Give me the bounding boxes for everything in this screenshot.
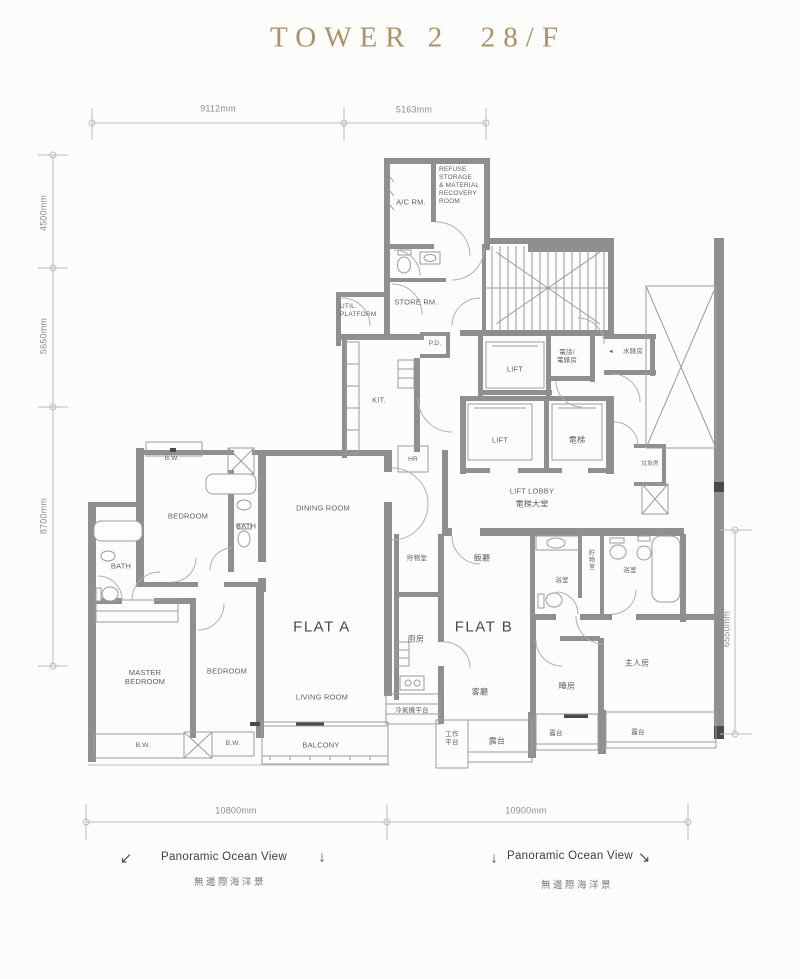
room-label-master-bedroom-a: MASTER BEDROOM <box>125 668 165 686</box>
dim-right-1: 6550mm <box>723 611 732 647</box>
room-label-bw-top: B.W. <box>165 455 180 463</box>
room-label-bedroom-a1: BEDROOM <box>168 512 208 521</box>
flat-a-name: FLAT A <box>293 623 351 632</box>
ocean-view-arrow-southwest-icon: ↙ <box>120 849 133 867</box>
ocean-view-arrow-southeast-icon: ↘ <box>638 848 651 866</box>
room-label-bw-bottom-left: B.W. <box>136 742 151 750</box>
page-title: TOWER 2 28/F <box>270 22 566 55</box>
room-label-bath-b1: 浴室 <box>555 577 568 585</box>
ocean-view-label-cn-left: 無邊際海洋景 <box>194 874 266 888</box>
room-label-utility-platform-b: 工作 平台 <box>445 731 458 747</box>
room-label-ac-room: A/C RM. <box>396 198 426 207</box>
flat-b-name: FLAT B <box>455 623 513 632</box>
room-label-dining-a: DINING ROOM <box>296 504 350 513</box>
room-label-kitchen-b: 廚房 <box>408 635 424 644</box>
dim-left-2: 5650mm <box>40 318 49 354</box>
ocean-view-arrow-down-right-icon: ↓ <box>490 850 498 867</box>
dim-bottom-1: 10800mm <box>215 807 256 816</box>
room-label-balcony-a: BALCONY <box>302 741 339 750</box>
floorplan-linework <box>0 0 800 979</box>
dim-top-2: 5163mm <box>396 106 432 115</box>
room-label-hose-reel: HR <box>408 456 418 464</box>
room-label-bath-b2: 浴室 <box>623 567 636 575</box>
room-label-lift-lobby-cn: 電梯大堂 <box>516 500 549 509</box>
room-label-balcony-b3: 露台 <box>631 729 644 737</box>
room-label-store-b: 貯物室 <box>407 555 427 563</box>
room-label-water-meter-room: 水錶房 <box>623 348 643 356</box>
room-label-bw-bottom-right: B.W. <box>226 740 241 748</box>
ocean-view-arrow-down-left-icon: ↓ <box>318 849 326 866</box>
room-label-lift-lower: LIFT <box>492 436 508 445</box>
room-label-lift-cn: 電梯 <box>569 436 585 445</box>
room-label-lift-upper: LIFT <box>507 365 523 374</box>
room-label-balcony-b2: 露台 <box>549 730 562 738</box>
room-label-dining-b: 飯廳 <box>474 554 490 563</box>
dim-left-1: 4500mm <box>40 195 49 231</box>
room-label-master-bedroom-b: 主人房 <box>625 659 650 668</box>
room-label-balcony-b1: 露台 <box>489 737 505 746</box>
room-label-kitchen-core: KIT. <box>372 396 386 405</box>
ocean-view-label-left: Panoramic Ocean View <box>161 851 287 863</box>
water-meter-arrow-icon: ◄ <box>608 349 614 355</box>
room-label-living-b: 客廳 <box>472 688 488 697</box>
room-label-store-b2: 貯物室 <box>586 550 595 571</box>
room-label-living-a: LIVING ROOM <box>296 693 348 702</box>
room-label-bath-a1: BATH <box>236 522 256 531</box>
room-label-store-room: STORE RM. <box>394 298 437 307</box>
dim-bottom-2: 10900mm <box>505 807 546 816</box>
room-label-lift-lobby: LIFT LOBBY <box>510 487 554 496</box>
room-label-tel-meter-room: 電話/ 電錶房 <box>557 349 577 365</box>
room-label-util-platform: UTIL. PLATFORM <box>340 303 390 319</box>
floorplan-sheet: TOWER 2 28/F 9112mm 5163mm 4500mm 5650mm… <box>0 0 800 979</box>
room-label-pipe-duct: P.D. <box>429 340 442 348</box>
room-label-bedroom-b: 睡房 <box>559 682 575 691</box>
dim-top-1: 9112mm <box>200 105 236 114</box>
room-label-bath-a2: BATH <box>111 562 131 571</box>
room-label-refuse-room: REFUSE STORAGE & MATERIAL RECOVERY ROOM <box>439 166 487 206</box>
ocean-view-label-right: Panoramic Ocean View <box>507 850 633 862</box>
room-label-bedroom-a2: BEDROOM <box>207 667 247 676</box>
dim-left-3: 8700mm <box>40 498 49 534</box>
room-label-ac-platform: 冷氣機平台 <box>395 707 429 715</box>
room-label-refuse-chute: 垃圾房 <box>641 461 658 467</box>
ocean-view-label-cn-right: 無邊際海洋景 <box>541 877 613 891</box>
